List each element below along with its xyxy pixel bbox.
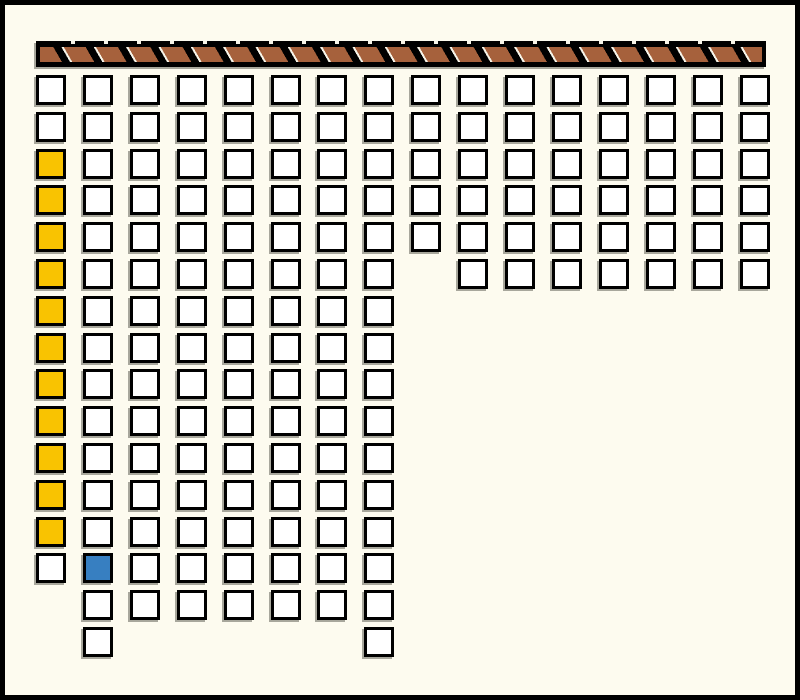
grid-cell-r1c10[interactable] bbox=[458, 75, 488, 105]
grid-cell-r4c2[interactable] bbox=[83, 185, 113, 215]
grid-cell-r6c7[interactable] bbox=[317, 259, 347, 289]
grid-cell-r10c2[interactable] bbox=[83, 406, 113, 436]
grid-cell-r2c13[interactable] bbox=[599, 112, 629, 142]
grid-cell-r15c7[interactable] bbox=[317, 590, 347, 620]
grid-cell-r3c12[interactable] bbox=[552, 149, 582, 179]
grid-cell-r8c7[interactable] bbox=[317, 333, 347, 363]
grid-cell-r3c4[interactable] bbox=[177, 149, 207, 179]
grid-cell-r6c1[interactable] bbox=[36, 259, 66, 289]
grid-cell-r9c2[interactable] bbox=[83, 369, 113, 399]
grid-cell-r1c12[interactable] bbox=[552, 75, 582, 105]
grid-cell-r5c11[interactable] bbox=[505, 222, 535, 252]
grid-cell-r11c4[interactable] bbox=[177, 443, 207, 473]
grid-cell-r3c16[interactable] bbox=[740, 149, 770, 179]
grid-cell-r14c8[interactable] bbox=[364, 553, 394, 583]
grid-cell-r6c15[interactable] bbox=[693, 259, 723, 289]
grid-cell-r6c2[interactable] bbox=[83, 259, 113, 289]
grid-cell-r6c8[interactable] bbox=[364, 259, 394, 289]
grid-cell-r11c1[interactable] bbox=[36, 443, 66, 473]
grid-cell-r14c4[interactable] bbox=[177, 553, 207, 583]
grid-cell-r3c6[interactable] bbox=[271, 149, 301, 179]
grid-cell-r16c2[interactable] bbox=[83, 627, 113, 657]
grid-cell-r13c5[interactable] bbox=[224, 517, 254, 547]
grid-cell-r3c14[interactable] bbox=[646, 149, 676, 179]
grid-cell-r15c4[interactable] bbox=[177, 590, 207, 620]
grid-cell-r8c8[interactable] bbox=[364, 333, 394, 363]
grid-cell-r3c13[interactable] bbox=[599, 149, 629, 179]
grid-cell-r1c7[interactable] bbox=[317, 75, 347, 105]
grid-cell-r1c13[interactable] bbox=[599, 75, 629, 105]
grid-cell-r1c6[interactable] bbox=[271, 75, 301, 105]
grid-cell-r7c2[interactable] bbox=[83, 296, 113, 326]
grid-cell-r13c3[interactable] bbox=[130, 517, 160, 547]
grid-cell-r5c9[interactable] bbox=[411, 222, 441, 252]
grid-cell-r9c7[interactable] bbox=[317, 369, 347, 399]
grid-cell-r6c16[interactable] bbox=[740, 259, 770, 289]
grid-cell-r5c10[interactable] bbox=[458, 222, 488, 252]
grid-cell-r5c12[interactable] bbox=[552, 222, 582, 252]
grid-cell-r15c3[interactable] bbox=[130, 590, 160, 620]
grid-cell-r13c2[interactable] bbox=[83, 517, 113, 547]
grid-cell-r12c2[interactable] bbox=[83, 480, 113, 510]
grid-cell-r1c9[interactable] bbox=[411, 75, 441, 105]
grid-cell-r2c16[interactable] bbox=[740, 112, 770, 142]
grid-cell-r14c5[interactable] bbox=[224, 553, 254, 583]
grid-cell-r4c3[interactable] bbox=[130, 185, 160, 215]
grid-cell-r5c5[interactable] bbox=[224, 222, 254, 252]
grid-cell-r2c3[interactable] bbox=[130, 112, 160, 142]
grid-cell-r5c6[interactable] bbox=[271, 222, 301, 252]
grid-cell-r3c9[interactable] bbox=[411, 149, 441, 179]
grid-cell-r1c3[interactable] bbox=[130, 75, 160, 105]
grid-cell-r8c6[interactable] bbox=[271, 333, 301, 363]
grid-cell-r11c2[interactable] bbox=[83, 443, 113, 473]
grid-cell-r8c4[interactable] bbox=[177, 333, 207, 363]
grid-cell-r1c8[interactable] bbox=[364, 75, 394, 105]
grid-cell-r12c5[interactable] bbox=[224, 480, 254, 510]
grid-cell-r4c12[interactable] bbox=[552, 185, 582, 215]
grid-cell-r3c2[interactable] bbox=[83, 149, 113, 179]
grid-cell-r8c5[interactable] bbox=[224, 333, 254, 363]
grid-cell-r3c5[interactable] bbox=[224, 149, 254, 179]
grid-cell-r10c7[interactable] bbox=[317, 406, 347, 436]
grid-cell-r8c2[interactable] bbox=[83, 333, 113, 363]
grid-cell-r5c1[interactable] bbox=[36, 222, 66, 252]
grid-cell-r12c7[interactable] bbox=[317, 480, 347, 510]
grid-cell-r7c7[interactable] bbox=[317, 296, 347, 326]
grid-cell-r4c16[interactable] bbox=[740, 185, 770, 215]
grid-cell-r4c7[interactable] bbox=[317, 185, 347, 215]
grid-cell-r8c1[interactable] bbox=[36, 333, 66, 363]
grid-cell-r5c2[interactable] bbox=[83, 222, 113, 252]
grid-cell-r12c6[interactable] bbox=[271, 480, 301, 510]
grid-cell-r1c15[interactable] bbox=[693, 75, 723, 105]
grid-cell-r9c1[interactable] bbox=[36, 369, 66, 399]
grid-cell-r4c1[interactable] bbox=[36, 185, 66, 215]
grid-cell-r2c5[interactable] bbox=[224, 112, 254, 142]
grid-cell-r7c1[interactable] bbox=[36, 296, 66, 326]
grid-cell-r2c8[interactable] bbox=[364, 112, 394, 142]
grid-cell-r15c8[interactable] bbox=[364, 590, 394, 620]
grid-cell-r15c5[interactable] bbox=[224, 590, 254, 620]
grid-cell-r6c14[interactable] bbox=[646, 259, 676, 289]
grid-cell-r13c6[interactable] bbox=[271, 517, 301, 547]
grid-cell-r1c16[interactable] bbox=[740, 75, 770, 105]
grid-cell-r7c8[interactable] bbox=[364, 296, 394, 326]
grid-cell-r12c4[interactable] bbox=[177, 480, 207, 510]
grid-cell-r4c10[interactable] bbox=[458, 185, 488, 215]
grid-cell-r8c3[interactable] bbox=[130, 333, 160, 363]
grid-cell-r10c5[interactable] bbox=[224, 406, 254, 436]
grid-cell-r4c11[interactable] bbox=[505, 185, 535, 215]
grid-cell-r6c13[interactable] bbox=[599, 259, 629, 289]
grid-cell-r4c5[interactable] bbox=[224, 185, 254, 215]
grid-cell-r2c9[interactable] bbox=[411, 112, 441, 142]
grid-cell-r5c8[interactable] bbox=[364, 222, 394, 252]
grid-cell-r9c4[interactable] bbox=[177, 369, 207, 399]
grid-cell-r5c4[interactable] bbox=[177, 222, 207, 252]
grid-cell-r3c3[interactable] bbox=[130, 149, 160, 179]
grid-cell-r1c4[interactable] bbox=[177, 75, 207, 105]
grid-cell-r4c8[interactable] bbox=[364, 185, 394, 215]
grid-cell-r11c7[interactable] bbox=[317, 443, 347, 473]
grid-cell-r10c1[interactable] bbox=[36, 406, 66, 436]
grid-cell-r5c15[interactable] bbox=[693, 222, 723, 252]
grid-cell-r5c13[interactable] bbox=[599, 222, 629, 252]
grid-cell-r4c13[interactable] bbox=[599, 185, 629, 215]
grid-cell-r4c9[interactable] bbox=[411, 185, 441, 215]
grid-cell-r2c1[interactable] bbox=[36, 112, 66, 142]
grid-cell-r13c8[interactable] bbox=[364, 517, 394, 547]
grid-cell-r6c4[interactable] bbox=[177, 259, 207, 289]
grid-cell-r3c8[interactable] bbox=[364, 149, 394, 179]
grid-cell-r6c10[interactable] bbox=[458, 259, 488, 289]
grid-cell-r2c12[interactable] bbox=[552, 112, 582, 142]
grid-cell-r1c14[interactable] bbox=[646, 75, 676, 105]
grid-cell-r3c7[interactable] bbox=[317, 149, 347, 179]
grid-cell-r14c1[interactable] bbox=[36, 553, 66, 583]
grid-cell-r6c6[interactable] bbox=[271, 259, 301, 289]
hatched-wall bbox=[36, 41, 766, 67]
grid-cell-r14c7[interactable] bbox=[317, 553, 347, 583]
grid-cell-r6c3[interactable] bbox=[130, 259, 160, 289]
grid-cell-r14c2[interactable] bbox=[83, 553, 113, 583]
grid-cell-r5c7[interactable] bbox=[317, 222, 347, 252]
grid-cell-r4c14[interactable] bbox=[646, 185, 676, 215]
grid-cell-r5c16[interactable] bbox=[740, 222, 770, 252]
grid-cell-r7c4[interactable] bbox=[177, 296, 207, 326]
canvas-border-frame bbox=[0, 0, 800, 700]
grid-cell-r6c5[interactable] bbox=[224, 259, 254, 289]
grid-cell-r15c6[interactable] bbox=[271, 590, 301, 620]
grid-cell-r1c11[interactable] bbox=[505, 75, 535, 105]
grid-cell-r2c4[interactable] bbox=[177, 112, 207, 142]
grid-cell-r3c11[interactable] bbox=[505, 149, 535, 179]
grid-cell-r7c6[interactable] bbox=[271, 296, 301, 326]
grid-cell-r1c1[interactable] bbox=[36, 75, 66, 105]
grid-cell-r2c7[interactable] bbox=[317, 112, 347, 142]
grid-cell-r11c8[interactable] bbox=[364, 443, 394, 473]
grid-cell-r5c14[interactable] bbox=[646, 222, 676, 252]
grid-cell-r3c10[interactable] bbox=[458, 149, 488, 179]
grid-cell-r13c7[interactable] bbox=[317, 517, 347, 547]
grid-cell-r7c3[interactable] bbox=[130, 296, 160, 326]
grid-cell-r1c2[interactable] bbox=[83, 75, 113, 105]
grid-cell-r11c3[interactable] bbox=[130, 443, 160, 473]
grid-cell-r10c6[interactable] bbox=[271, 406, 301, 436]
grid-cell-r16c8[interactable] bbox=[364, 627, 394, 657]
grid-cell-r3c1[interactable] bbox=[36, 149, 66, 179]
grid-cell-r2c6[interactable] bbox=[271, 112, 301, 142]
simulation-canvas bbox=[0, 0, 800, 700]
grid-cell-r2c2[interactable] bbox=[83, 112, 113, 142]
grid-cell-r12c1[interactable] bbox=[36, 480, 66, 510]
grid-cell-r13c4[interactable] bbox=[177, 517, 207, 547]
grid-cell-r14c3[interactable] bbox=[130, 553, 160, 583]
grid-cell-r7c5[interactable] bbox=[224, 296, 254, 326]
grid-cell-r9c6[interactable] bbox=[271, 369, 301, 399]
grid-cell-r9c8[interactable] bbox=[364, 369, 394, 399]
grid-cell-r9c3[interactable] bbox=[130, 369, 160, 399]
grid-cell-r2c14[interactable] bbox=[646, 112, 676, 142]
grid-cell-r12c3[interactable] bbox=[130, 480, 160, 510]
grid-cell-r9c5[interactable] bbox=[224, 369, 254, 399]
grid-cell-r1c5[interactable] bbox=[224, 75, 254, 105]
grid-cell-r4c4[interactable] bbox=[177, 185, 207, 215]
grid-cell-r14c6[interactable] bbox=[271, 553, 301, 583]
grid-cell-r4c6[interactable] bbox=[271, 185, 301, 215]
grid-cell-r11c5[interactable] bbox=[224, 443, 254, 473]
grid-cell-r15c2[interactable] bbox=[83, 590, 113, 620]
grid-cell-r12c8[interactable] bbox=[364, 480, 394, 510]
grid-cell-r13c1[interactable] bbox=[36, 517, 66, 547]
grid-cell-r6c12[interactable] bbox=[552, 259, 582, 289]
grid-cell-r2c10[interactable] bbox=[458, 112, 488, 142]
grid-cell-r10c4[interactable] bbox=[177, 406, 207, 436]
grid-cell-r10c3[interactable] bbox=[130, 406, 160, 436]
grid-cell-r4c15[interactable] bbox=[693, 185, 723, 215]
grid-cell-r5c3[interactable] bbox=[130, 222, 160, 252]
grid-cell-r10c8[interactable] bbox=[364, 406, 394, 436]
grid-cell-r11c6[interactable] bbox=[271, 443, 301, 473]
grid-cell-r2c15[interactable] bbox=[693, 112, 723, 142]
grid-cell-r3c15[interactable] bbox=[693, 149, 723, 179]
grid-cell-r2c11[interactable] bbox=[505, 112, 535, 142]
grid-cell-r6c11[interactable] bbox=[505, 259, 535, 289]
